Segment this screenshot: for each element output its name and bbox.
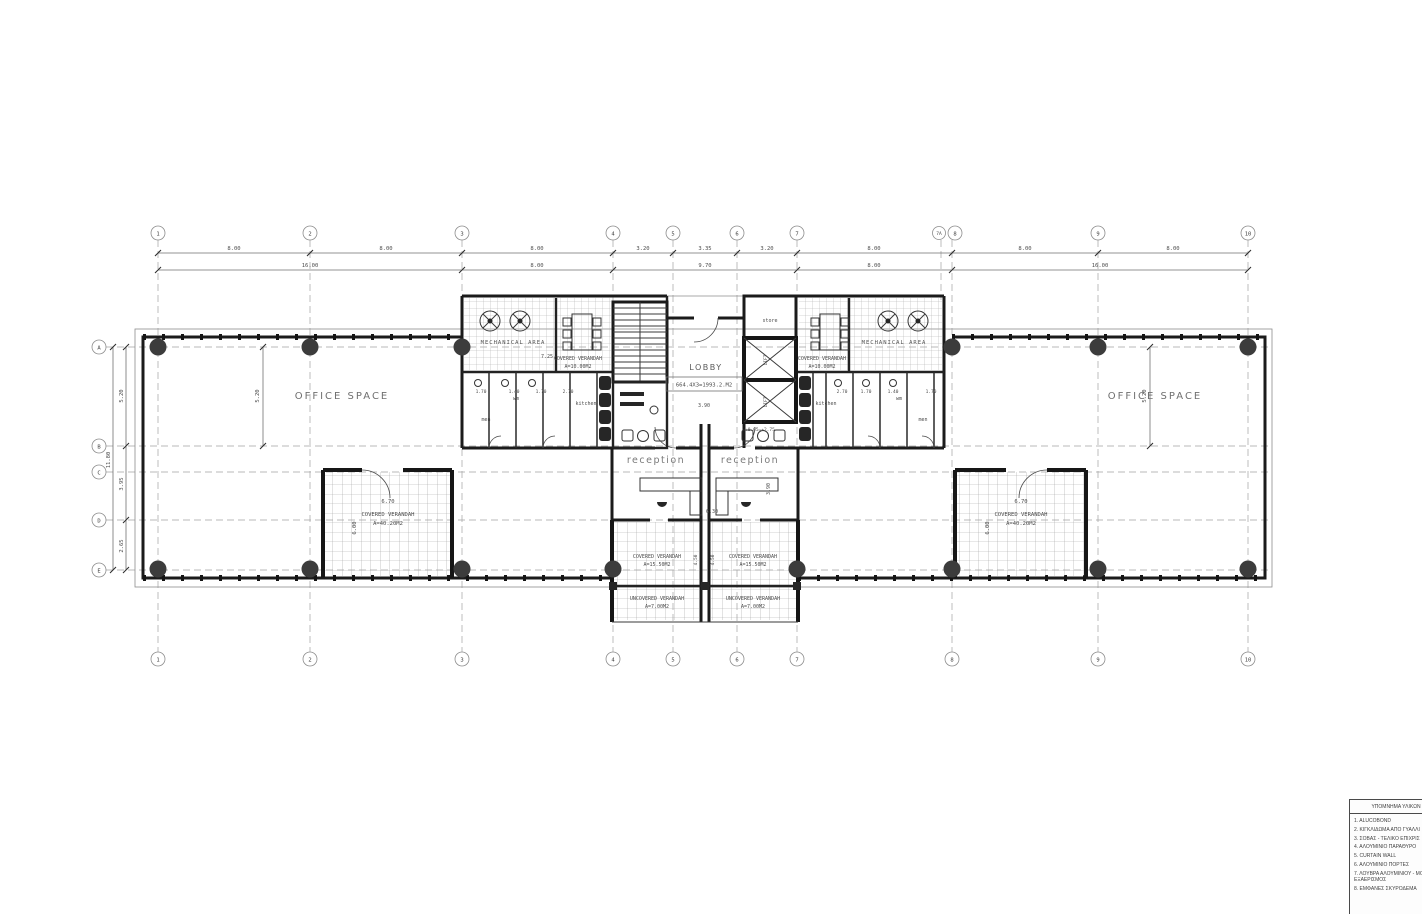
verandah-side-right-area: A=40.20M2: [1006, 521, 1036, 527]
room-label-wm-left: wm: [513, 396, 519, 402]
legend-title: ΥΠΟΜΝΗΜΑ ΥΛΙΚΩΝ: [1350, 800, 1422, 814]
top-dimension-chain: 8.00 8.00 8.00 3.20 3.35 3.20 8.00 8.00 …: [155, 246, 1251, 273]
grid-bubble-label: D: [97, 519, 100, 525]
grab-bar: [620, 392, 644, 396]
grid-bubble-label: 4: [611, 658, 615, 664]
level-annotation: +0.05=+2.75: [745, 427, 775, 433]
stool: [657, 502, 667, 507]
room-label-mechanical-right: MECHANICAL AREA: [862, 340, 927, 346]
grid-bubbles-top: 1 2 3 4 5 6 7 7A 8 9 10: [151, 226, 1255, 240]
dim-label: 9.70: [698, 263, 711, 269]
verandah-core-right-label: COVERED VERANDAH: [798, 356, 846, 362]
grid-bubble-label: 1: [156, 232, 159, 238]
dim-label: 8.00: [867, 263, 880, 269]
dim-label: 2.70: [563, 389, 574, 395]
dim-label: 6.00: [352, 521, 358, 534]
room-label-office-left: OFFICE SPACE: [295, 391, 390, 402]
reception-desk-left: [640, 478, 702, 515]
dim-label: 3.20: [760, 246, 773, 252]
left-dimension-chain: 11.80 5.20 3.95 2.65: [106, 344, 129, 573]
grab-bar: [620, 402, 644, 406]
dim-label: 5.20: [119, 389, 125, 402]
dim-label: 2.70: [837, 389, 848, 395]
grid-bubble-label: 7: [795, 232, 798, 238]
verandah-side-right-label: COVERED VERANDAH: [995, 512, 1048, 518]
wing-dimensions: 5.20 5.20: [255, 344, 1153, 449]
floor-plan-drawing: 8.00 8.00 8.00 3.20 3.35 3.20 8.00 8.00 …: [0, 0, 1422, 914]
lobby-area-label: 664.4X3=1993.2.M2: [676, 383, 732, 389]
dim-label: 5.20: [255, 389, 261, 402]
grid-bubble-label: 7: [795, 658, 798, 664]
dim-label: 16.00: [1092, 263, 1109, 269]
grid-bubble-label: 4: [611, 232, 615, 238]
verandah-center-covered-right-label: COVERED VERANDAH: [729, 554, 777, 560]
dim-label: 3.35: [698, 246, 711, 252]
grid-bubble-label: 5: [671, 232, 674, 238]
room-label-wm-right: wm: [896, 396, 902, 402]
grid-bubble-label: 3: [460, 232, 463, 238]
verandah-center-covered-left-area: A=15.50M2: [643, 562, 670, 568]
dim-label: 8.00: [530, 246, 543, 252]
dim-label: 11.80: [106, 452, 112, 469]
verandah-center-uncovered-left-label: UNCOVERED VERANDAH: [630, 596, 684, 602]
stool: [741, 502, 751, 507]
grid-bubble-label: E: [97, 569, 100, 575]
row-bubbles: A B C D E: [92, 340, 106, 577]
dim-label: 1.40: [509, 389, 520, 395]
grid-bubble-label: 10: [1245, 658, 1252, 664]
legend-item: 3. ΣΟΒΑΣ - ΤΕΛΙΚΟ ΕΠΙΧΡΙΣ: [1354, 836, 1422, 842]
room-label-reception-right: reception: [721, 455, 779, 466]
grid-bubble-label: 1: [156, 658, 159, 664]
dim-label: 3.90: [698, 403, 710, 409]
grid-bubble-label: 7A: [936, 231, 942, 237]
reception-zone: [612, 424, 798, 522]
room-label-store: store: [762, 318, 777, 324]
dim-label: 6.70: [1014, 499, 1027, 505]
store-room: [744, 296, 796, 338]
verandah-side-left-label: COVERED VERANDAH: [362, 512, 415, 518]
wc-fixture: [650, 406, 658, 414]
room-label-office-right: OFFICE SPACE: [1108, 391, 1203, 402]
room-label-kitchen-left: kitchen: [575, 401, 596, 407]
grid-bubble-label: 9: [1096, 658, 1099, 664]
floor-plan-page: 8.00 8.00 8.00 3.20 3.35 3.20 8.00 8.00 …: [0, 0, 1422, 914]
dim-label: 3.20: [636, 246, 649, 252]
grid-bubble-label: 6: [735, 232, 738, 238]
dim-label: 4.50: [710, 554, 716, 565]
legend-item: 7. ΛΟΥΒΡΑ ΑΛΟΥΜΙΝΙΟΥ - ΜΟΝΙΜΟΣ ΕΞΑΕΡΙΣΜΟ…: [1354, 871, 1422, 884]
dim-label: 8.00: [1018, 246, 1031, 252]
grid-bubble-label: 5: [671, 658, 674, 664]
dim-label: 6.00: [985, 521, 991, 534]
dim-label: 8.00: [1166, 246, 1179, 252]
verandah-center-uncovered-right-label: UNCOVERED VERANDAH: [726, 596, 780, 602]
legend-item: 1. ALUCOBOND: [1354, 818, 1422, 824]
dim-label: 2.65: [119, 539, 125, 552]
verandah-center-uncovered-left-area: A=7.00M2: [645, 604, 669, 610]
grid-bubble-label: 2: [308, 658, 311, 664]
room-label-men-left: men: [481, 417, 490, 423]
grid-bubble-label: 9: [1096, 232, 1099, 238]
core: [462, 296, 944, 448]
room-label-reception-left: reception: [627, 455, 685, 466]
grid-bubble-label: A: [97, 346, 101, 352]
dim-label: 1.70: [926, 389, 937, 395]
legend-item: 6. ΑΛΟΥΜΙΝΙΟ ΠΟΡΤΕΣ: [1354, 862, 1422, 868]
grid-bubble-label: 10: [1245, 232, 1252, 238]
dim-label: 1.40: [888, 389, 899, 395]
verandah-side-left-area: A=40.20M2: [373, 521, 403, 527]
grid-bubble-label: B: [97, 445, 101, 451]
room-label-lift-1: LIFT: [763, 354, 769, 365]
grid-bubble-label: 2: [308, 232, 311, 238]
verandah-core-left-label: COVERED VERANDAH: [554, 356, 602, 362]
dim-label: 3.90: [766, 483, 772, 495]
dim-label: 1.70: [861, 389, 872, 395]
staircase: [613, 302, 667, 448]
dim-label: 8.00: [530, 263, 543, 269]
dim-label: 16.00: [302, 263, 319, 269]
legend-item: 8. ΕΜΦΑΝΕΣ ΣΚΥΡΟΔΕΜΑ: [1354, 886, 1422, 892]
center-verandahs: [609, 520, 801, 622]
verandah-center-covered-left-label: COVERED VERANDAH: [633, 554, 681, 560]
dim-label: 8.00: [867, 246, 880, 252]
room-label-men-right: men: [918, 417, 927, 423]
dim-label: 6.30: [706, 509, 718, 515]
legend-item: 5. CURTAIN WALL: [1354, 853, 1422, 859]
dim-label: 8.00: [379, 246, 392, 252]
room-label-lobby: LOBBY: [689, 363, 722, 372]
dim-label: 6.70: [381, 499, 394, 505]
verandah-center-covered-right-area: A=15.50M2: [739, 562, 766, 568]
dim-label: 7.25: [541, 354, 553, 360]
grid-bubble-label: 6: [735, 658, 738, 664]
room-label-mechanical-left: MECHANICAL AREA: [481, 340, 546, 346]
dim-label: 1.70: [476, 389, 487, 395]
lift-shafts: [744, 338, 796, 422]
grid-bubble-label: 3: [460, 658, 463, 664]
room-label-lift-2: LIFT: [763, 396, 769, 407]
dim-label: 1.70: [536, 389, 547, 395]
verandah-center-uncovered-right-area: A=7.00M2: [741, 604, 765, 610]
grid-bubbles-bottom: 1 2 3 4 5 6 7 8 9 10: [151, 652, 1255, 666]
room-label-kitchen-right: kitchen: [815, 401, 836, 407]
dim-label: 8.00: [227, 246, 240, 252]
grid-bubble-label: 8: [950, 658, 953, 664]
dim-label: 4.50: [693, 554, 699, 565]
columns: [150, 339, 1257, 578]
grid-bubble-label: C: [97, 471, 100, 477]
legend-item: 2. ΚΙΓΚΛΙΔΩΜΑ ΑΠΟ ΓΥΑΛΛΙ: [1354, 827, 1422, 833]
dim-label: 3.95: [119, 477, 125, 490]
verandah-core-left-area: A=10.00M2: [564, 364, 591, 370]
materials-legend: ΥΠΟΜΝΗΜΑ ΥΛΙΚΩΝ 1. ALUCOBOND 2. ΚΙΓΚΛΙΔΩ…: [1349, 799, 1422, 914]
legend-item: 4. ΑΛΟΥΜΙΝΙΟ ΠΑΡΑΘΥΡΟ: [1354, 844, 1422, 850]
grid-bubble-label: 8: [953, 232, 956, 238]
verandah-core-right-area: A=10.00M2: [808, 364, 835, 370]
